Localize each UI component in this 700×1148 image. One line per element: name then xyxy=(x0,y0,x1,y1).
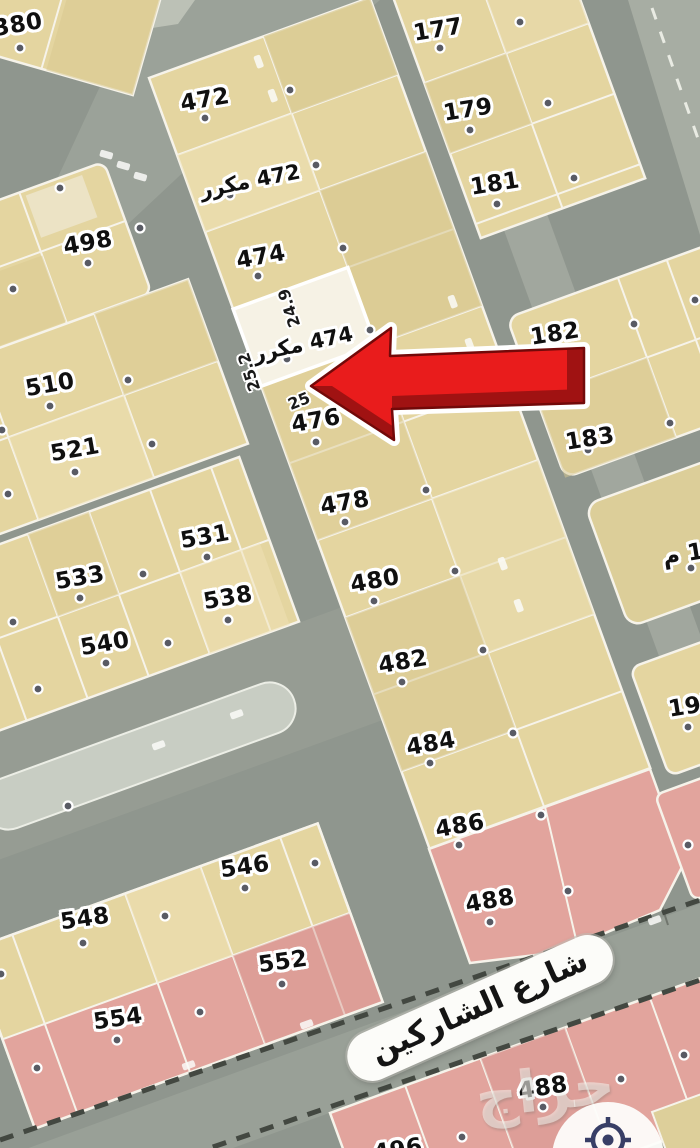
plot-label-482: 482 xyxy=(376,645,429,679)
plot-label-177: 177 xyxy=(412,13,465,46)
parcel-map: 380 472 472 مكرر 474 474 مكرر 24.9 25.2 … xyxy=(0,0,700,1148)
plot-label-548: 548 xyxy=(59,903,112,936)
plot-label-510: 510 xyxy=(23,368,76,402)
plot-label-480: 480 xyxy=(348,564,401,598)
plot-label-474: 474 xyxy=(234,240,287,274)
plot-label-179: 179 xyxy=(442,93,495,126)
plot-label-546: 546 xyxy=(219,851,272,884)
plot-label-193-clipped: 193 xyxy=(667,689,700,722)
watermark-brand-text: حراج xyxy=(472,1049,618,1131)
plot-label-181: 181 xyxy=(469,167,522,200)
plot-label-474-mukarrar-highlighted: 474 مكرر xyxy=(251,322,355,367)
plot-label-183: 183 xyxy=(564,422,617,455)
plot-label-540: 540 xyxy=(78,627,131,661)
plot-label-484: 484 xyxy=(404,727,457,761)
plot-label-19m-clipped: 191 م xyxy=(661,533,700,570)
plot-label-552: 552 xyxy=(257,946,310,979)
plot-label-472-mukarrar: 472 مكرر xyxy=(198,160,302,203)
plot-label-521: 521 xyxy=(48,433,101,467)
plot-label-488-upper: 488 xyxy=(463,884,516,918)
plot-label-531: 531 xyxy=(178,520,231,554)
plot-label-496-clipped: 496 xyxy=(372,1133,425,1148)
plot-label-533: 533 xyxy=(53,561,106,595)
plot-label-380: 380 xyxy=(0,8,45,42)
plot-label-182: 182 xyxy=(529,317,582,350)
plot-label-478: 478 xyxy=(318,486,371,520)
plot-label-486: 486 xyxy=(433,809,486,843)
dimension-top: 24.9 xyxy=(274,286,304,329)
plot-label-472: 472 xyxy=(178,83,231,117)
plot-label-498: 498 xyxy=(61,226,114,260)
plot-label-538: 538 xyxy=(201,581,254,615)
plot-label-554: 554 xyxy=(92,1003,145,1036)
